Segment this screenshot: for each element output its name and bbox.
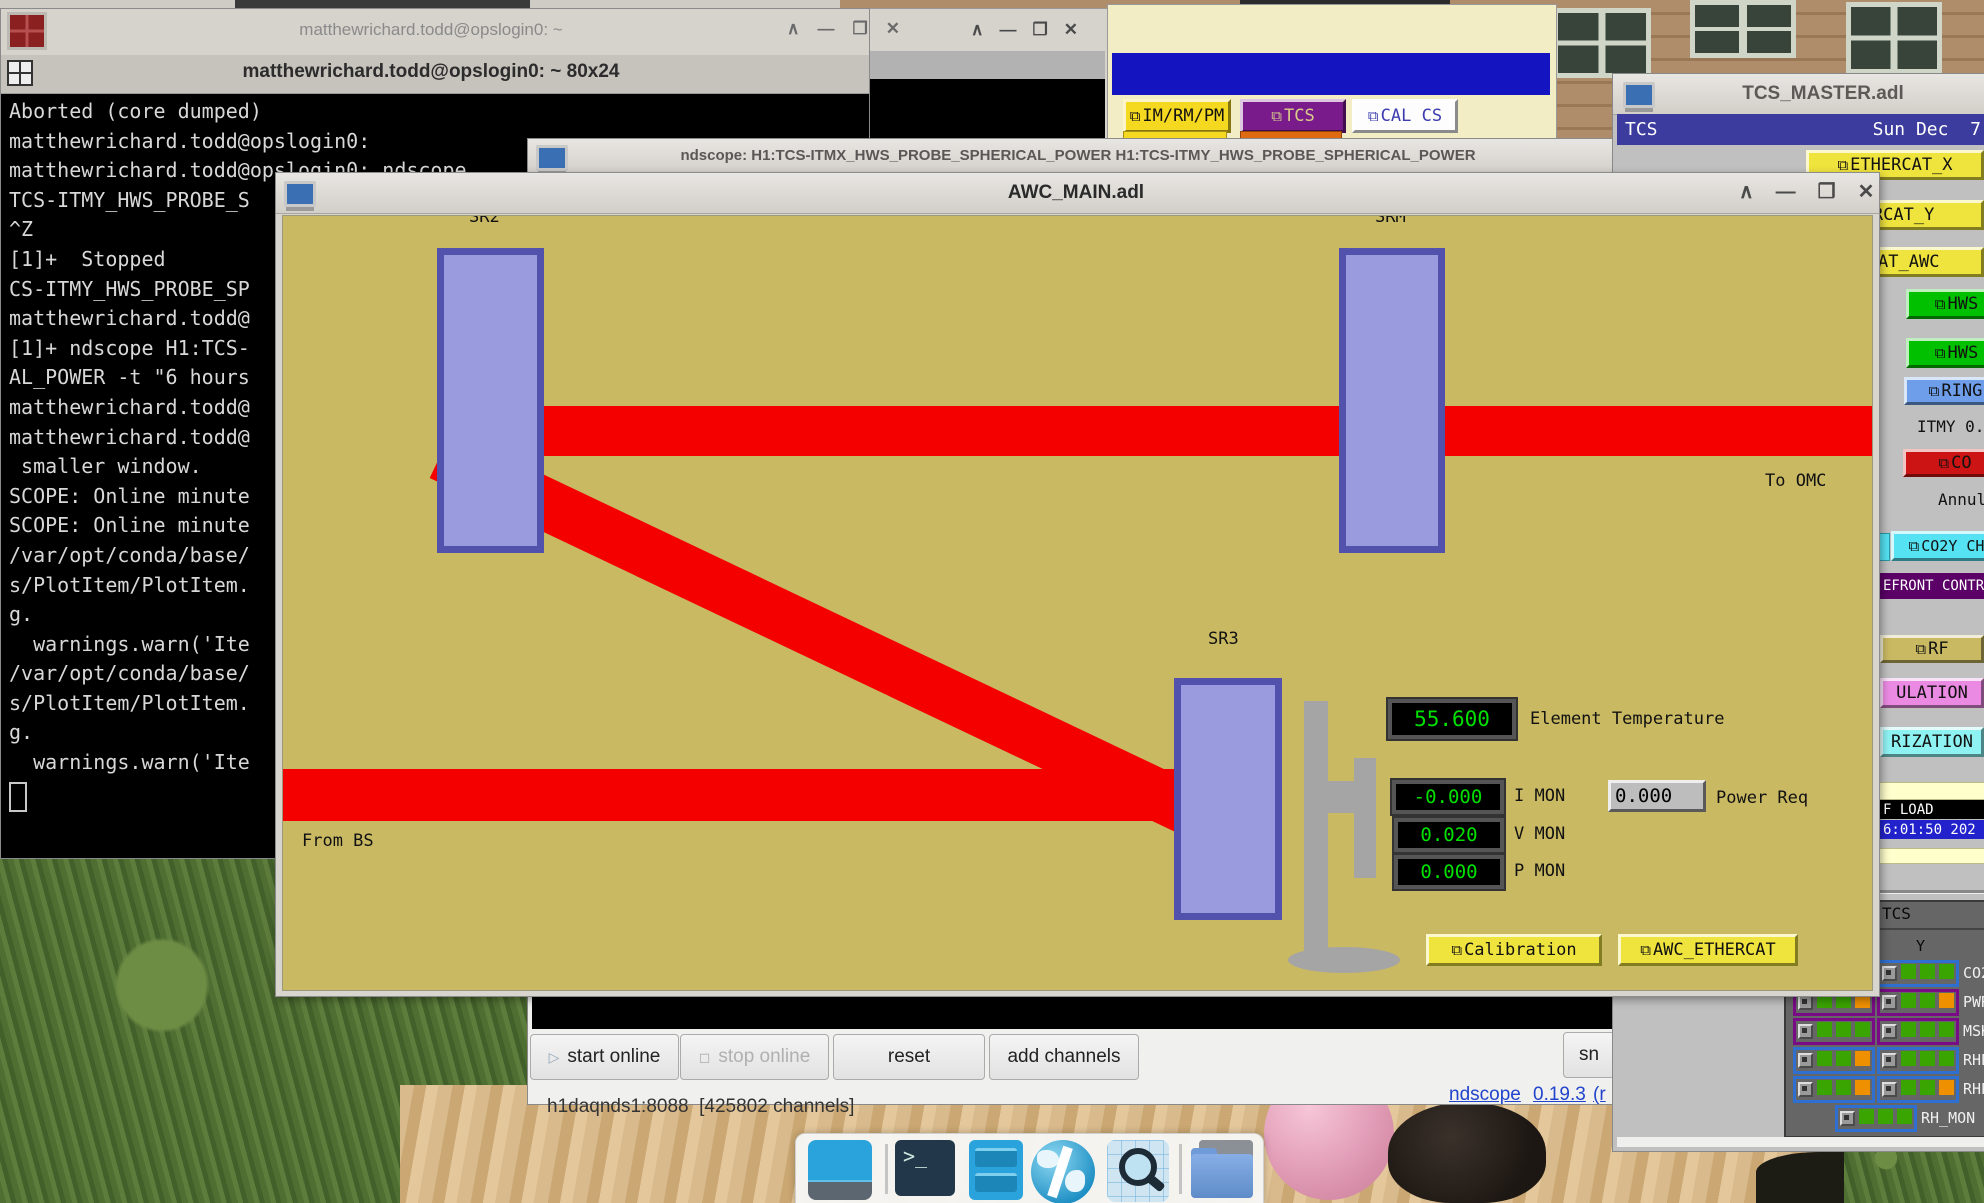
button-label: sn (1579, 1044, 1599, 1066)
mirror-sr2 (437, 248, 544, 553)
indicator-cells (1897, 1022, 1954, 1042)
related-display-icon: ⧉ (1929, 382, 1940, 400)
wavefront-control-banner: EFRONT CONTR (1880, 573, 1984, 599)
indicator-button[interactable] (1798, 995, 1813, 1010)
indicator-cell-green (1817, 1051, 1832, 1066)
maximize-icon[interactable]: ❒ (852, 20, 867, 37)
banner-label: EFRONT CONTR (1883, 578, 1984, 594)
button-label: add channels (1007, 1046, 1120, 1068)
indicator-cell-green (1836, 1080, 1851, 1095)
indicator-cell-green (1920, 1080, 1935, 1095)
sr3-label: SR3 (1208, 629, 1239, 649)
related-display-icon: ⧉ (1938, 454, 1949, 472)
heater-base (1288, 947, 1400, 973)
itmy-value-label: ITMY 0.0 (1917, 417, 1984, 436)
button-label: CO2Y CH (1921, 537, 1984, 555)
indicator-button[interactable] (1798, 1082, 1813, 1097)
element-temp-readout: 55.600 (1388, 699, 1516, 739)
annulus-label: Annul (1938, 490, 1984, 509)
maximize-icon[interactable]: ❒ (1818, 182, 1836, 202)
button-label: stop online (718, 1046, 810, 1068)
indicator-cell-orange (1855, 1051, 1870, 1066)
to-omc-label: To OMC (1765, 471, 1826, 491)
indicator-cell-green (1901, 964, 1916, 979)
indicator-button[interactable] (1882, 966, 1897, 981)
v-mon-readout: 0.020 (1394, 818, 1504, 852)
indicator-cell-green (1817, 1080, 1832, 1095)
window-controls: ∧ — ❒ ✕ (1739, 182, 1874, 202)
file-manager-folder-icon[interactable] (1191, 1140, 1261, 1202)
button-label: AWC_ETHERCAT (1653, 940, 1776, 960)
tcs-header-left: TCS (1625, 119, 1658, 140)
close-icon[interactable]: ✕ (1064, 21, 1078, 38)
i-mon-readout: -0.000 (1392, 780, 1504, 814)
indicator-group (1877, 1076, 1959, 1103)
cyan-fragment (1879, 533, 1890, 561)
nds-server-status: h1daqnds1:8088 [425802 channels] (547, 1096, 854, 1118)
indicator-cell-green (1920, 1051, 1935, 1066)
power-req-input[interactable] (1608, 780, 1706, 812)
terminal-launcher-icon[interactable]: >_ (895, 1140, 955, 1196)
version-link[interactable]: 0.19.3 (1533, 1084, 1586, 1106)
button-label: TCS (1284, 106, 1315, 126)
indicator-group (1793, 1018, 1875, 1045)
indicator-group (1793, 1047, 1875, 1074)
indicator-cell-green (1920, 993, 1935, 1008)
indicator-button[interactable] (1882, 1082, 1897, 1097)
app-monitor-icon (284, 181, 316, 207)
indicator-group (1877, 1018, 1959, 1045)
tcs-header-date: Sun Dec 7 (1873, 119, 1981, 140)
heater-element (1354, 758, 1376, 878)
terminal-tab-title: matthewrichard.todd@opslogin0: ~ 80x24 (181, 61, 681, 83)
indicator-cell-green (1901, 993, 1916, 1008)
co2-button[interactable]: ⧉ CO (1903, 449, 1984, 477)
tcs-titlebar[interactable]: TCS_MASTER.adl (1613, 74, 1984, 115)
shade-icon[interactable]: ∧ (787, 20, 799, 37)
terminal-titlebar[interactable]: matthewrichard.todd@opslogin0: ~ ∧ — ❒ ✕ (1, 9, 869, 56)
button-label: ULATION (1896, 683, 1968, 703)
beam-from-bs (283, 769, 1180, 821)
tcs-title: TCS_MASTER.adl (1661, 83, 1984, 105)
button-label: IM/RM/PM (1142, 106, 1224, 126)
indicator-cells (1813, 1051, 1870, 1071)
indicator-cell-green (1836, 1051, 1851, 1066)
workspace-switcher-icon[interactable] (808, 1140, 872, 1200)
terminal-title: matthewrichard.todd@opslogin0: ~ (181, 20, 681, 40)
indicator-cell-green (1920, 1022, 1935, 1037)
close-icon[interactable]: ✕ (886, 20, 900, 37)
indicator-button[interactable] (1798, 1024, 1813, 1039)
indicator-cell-green (1901, 1080, 1916, 1095)
button-label: CO (1951, 453, 1971, 473)
indicator-cells (1897, 993, 1954, 1013)
screenshot-magnifier-icon[interactable] (1107, 1140, 1169, 1202)
indicator-cell-orange (1939, 993, 1954, 1008)
tcs-header-banner: TCS Sun Dec 7 (1617, 114, 1984, 145)
app-monitor-icon (536, 145, 568, 171)
xterm-icon[interactable] (7, 12, 47, 50)
window-controls: ∧ — ❒ ✕ (971, 21, 1078, 38)
indicator-cells (1897, 1051, 1954, 1071)
indicator-cell-green (1939, 964, 1954, 979)
ndscope-statusbar: h1daqnds1:8088 [425802 channels] ndscope… (528, 1084, 1621, 1124)
heater-arm (1328, 781, 1354, 813)
indicator-cell-green (1939, 1022, 1954, 1037)
stop-online-button[interactable]: ◻ stop online (680, 1034, 829, 1080)
row-label: CO2 (1963, 964, 1984, 982)
indicator-cells (1813, 1022, 1870, 1042)
snapshot-button[interactable]: sn (1563, 1032, 1615, 1078)
split-pane-icon[interactable] (7, 60, 33, 86)
button-label: HWS (1948, 343, 1979, 363)
indicator-button[interactable] (1882, 1053, 1897, 1068)
hws-button-1[interactable]: ⧉ HWS (1906, 289, 1984, 319)
add-channels-button[interactable]: add channels (989, 1034, 1139, 1080)
power-req-label: Power Req (1716, 788, 1808, 808)
panel-column-label: Y (1916, 937, 1925, 955)
dock-separator (1179, 1144, 1182, 1194)
indicator-cell-green (1901, 1022, 1916, 1037)
ring-button[interactable]: ⧉ RING (1904, 377, 1984, 405)
wallpaper-building-window (1846, 2, 1942, 74)
v-mon-label: V MON (1514, 824, 1565, 844)
release-link[interactable]: (r (1593, 1084, 1606, 1106)
window-a-content (861, 79, 1105, 144)
button-label: HWS (1948, 294, 1979, 314)
heater-post (1304, 701, 1328, 956)
modulation-button[interactable]: ULATION (1880, 678, 1984, 708)
indicator-group (1877, 1047, 1959, 1074)
button-label: RING (1941, 381, 1982, 401)
mirror-srm (1339, 248, 1445, 553)
awc-title: AWC_MAIN.adl (876, 182, 1276, 204)
sitemap-button-cal-cs[interactable]: ⧉ CAL CS (1352, 99, 1458, 133)
indicator-cells (1897, 1080, 1954, 1100)
awc-ethercat-button[interactable]: ⧉ AWC_ETHERCAT (1618, 934, 1798, 966)
stop-icon: ◻ (699, 1049, 711, 1066)
sitemap-button-tcs[interactable]: ⧉ TCS (1240, 99, 1346, 133)
indicator-cell-green (1836, 1022, 1851, 1037)
bar-label: 6:01:50 202 (1883, 822, 1976, 838)
terminal-tabbar[interactable]: matthewrichard.todd@opslogin0: ~ 80x24 (1, 55, 869, 94)
button-label: reset (888, 1046, 930, 1068)
awc-canvas: SR2 SRM SR3 To OMC From BS 55.600 Elemen… (282, 215, 1873, 991)
related-display-icon: ⧉ (1915, 640, 1926, 658)
sitemap-window: ⧉ IM/RM/PM ⧉ TCS ⧉ CAL CS (1107, 4, 1557, 142)
indicator-cell-green (1855, 1022, 1870, 1037)
mirror-sr3 (1174, 678, 1282, 920)
beam-sr2-to-omc (537, 406, 1872, 456)
srm-label: SRM (1375, 215, 1406, 227)
rf-button[interactable]: ⧉ RF (1880, 635, 1984, 663)
related-display-icon: ⧉ (1130, 107, 1141, 125)
related-display-icon: ⧉ (1451, 941, 1462, 959)
indicator-group (1877, 989, 1959, 1016)
button-label: RIZATION (1891, 732, 1973, 752)
indicator-group (1793, 1076, 1875, 1103)
reset-button[interactable]: reset (833, 1034, 985, 1080)
close-icon[interactable]: ✕ (1858, 182, 1875, 202)
window-bottom-border (1617, 1137, 1984, 1147)
polarization-button[interactable]: RIZATION (1880, 727, 1984, 757)
play-icon: ▷ (549, 1049, 560, 1066)
indicator-cell-green (1859, 1109, 1874, 1124)
dock-separator (885, 1144, 888, 1194)
terminal-cursor (9, 782, 27, 812)
awc-main-window: AWC_MAIN.adl ∧ — ❒ ✕ SR2 SRM SR3 To OMC … (275, 172, 1880, 997)
ndscope-link[interactable]: ndscope (1449, 1084, 1521, 1106)
row-label: MSK (1963, 1022, 1984, 1040)
timestamp-bar: 6:01:50 202 (1879, 820, 1984, 839)
dock: >_ (795, 1133, 1264, 1203)
file-cabinet-icon[interactable] (969, 1140, 1023, 1200)
bar-label: F LOAD (1883, 802, 1934, 818)
indicator-cell-green (1817, 1022, 1832, 1037)
indicator-button[interactable] (1798, 1053, 1813, 1068)
calibration-button[interactable]: ⧉ Calibration (1426, 934, 1602, 966)
indicator-cells (1855, 1109, 1912, 1129)
row-label: PWR (1963, 993, 1984, 1011)
ref-load-bar: F LOAD (1879, 800, 1984, 819)
indicator-cell-green (1878, 1109, 1893, 1124)
co2y-chiller-button[interactable]: ⧉ CO2Y CH (1891, 531, 1984, 561)
yellow-strip (1879, 782, 1984, 800)
yellow-strip (1879, 848, 1984, 864)
ndscope-title: ndscope: H1:TCS-ITMX_HWS_PROBE_SPHERICAL… (588, 147, 1568, 164)
minimize-icon[interactable]: — (1776, 182, 1796, 202)
button-label: Calibration (1464, 940, 1577, 960)
related-display-icon: ⧉ (1935, 295, 1946, 313)
wallpaper-building-window (1690, 0, 1796, 58)
indicator-button[interactable] (1882, 1024, 1897, 1039)
indicator-group (1877, 960, 1959, 987)
button-label: start online (567, 1046, 660, 1068)
awc-titlebar[interactable]: AWC_MAIN.adl ∧ — ❒ ✕ (276, 173, 1879, 214)
row-label: RH_MON (1921, 1109, 1975, 1127)
indicator-button[interactable] (1882, 995, 1897, 1010)
related-display-icon: ⧉ (1935, 344, 1946, 362)
from-bs-label: From BS (302, 831, 374, 851)
related-display-icon: ⧉ (1271, 107, 1282, 125)
indicator-cell-green (1939, 1051, 1954, 1066)
element-temp-label: Element Temperature (1530, 709, 1724, 729)
indicator-cell-green (1897, 1109, 1912, 1124)
window-controls: ∧ — ❒ ✕ (787, 20, 900, 37)
related-display-icon: ⧉ (1368, 107, 1379, 125)
start-online-button[interactable]: ▷ start online (530, 1034, 679, 1080)
i-mon-label: I MON (1514, 786, 1565, 806)
sr2-label: SR2 (469, 215, 500, 227)
maximize-icon[interactable]: ❒ (1032, 21, 1047, 38)
sitemap-button-im-rm-pm[interactable]: ⧉ IM/RM/PM (1123, 99, 1231, 133)
indicator-cells (1897, 964, 1954, 984)
web-browser-globe-icon[interactable] (1031, 1140, 1095, 1203)
related-display-icon: ⧉ (1909, 537, 1920, 555)
sitemap-banner (1112, 53, 1550, 95)
indicator-button[interactable] (1840, 1111, 1855, 1126)
wallpaper-building-window (1553, 8, 1651, 78)
app-monitor-icon (1623, 82, 1655, 108)
window-a-toolbar (861, 51, 1105, 79)
minimize-icon[interactable]: — (817, 20, 834, 37)
minimize-icon[interactable]: — (999, 21, 1016, 38)
indicator-group (1835, 1105, 1917, 1132)
shade-icon[interactable]: ∧ (1739, 182, 1754, 202)
button-label: RF (1928, 639, 1948, 659)
indicator-cell-green (1920, 964, 1935, 979)
indicator-cells (1813, 1080, 1870, 1100)
row-label: RHP (1963, 1051, 1984, 1069)
hws-button-2[interactable]: ⧉ HWS (1906, 338, 1984, 368)
desktop: { "colors":{"medm_tan":"#c9b963","beam_r… (0, 0, 1984, 1203)
indicator-cell-orange (1939, 1080, 1954, 1095)
button-label: CAL CS (1381, 106, 1442, 126)
p-mon-readout: 0.000 (1394, 855, 1504, 889)
related-display-icon: ⧉ (1640, 941, 1651, 959)
indicator-cell-orange (1855, 1080, 1870, 1095)
row-label: RHP (1963, 1080, 1984, 1098)
indicator-cell-green (1901, 1051, 1916, 1066)
shade-icon[interactable]: ∧ (971, 21, 983, 38)
p-mon-label: P MON (1514, 861, 1565, 881)
